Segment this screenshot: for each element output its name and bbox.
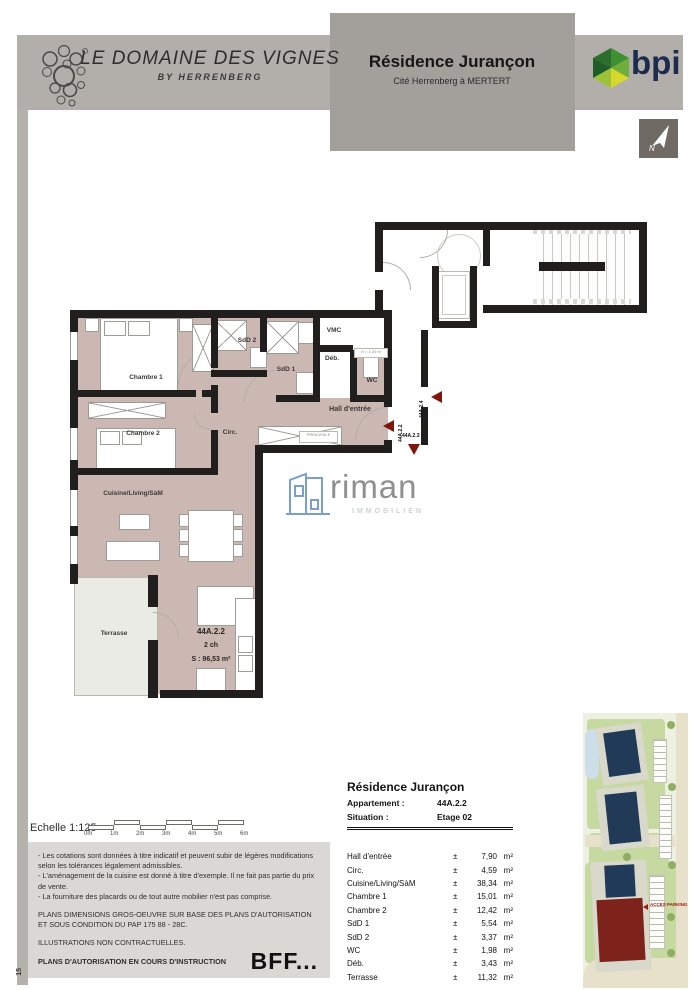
area-row-plusminus: ± bbox=[453, 973, 467, 982]
area-row-unit: m² bbox=[497, 919, 513, 928]
scale-tick-label: 4m bbox=[188, 831, 196, 837]
area-row: Chambre 2 ± 12,42 m² bbox=[347, 906, 513, 919]
situation-row: Situation : Etage 02 bbox=[347, 811, 513, 825]
area-row-plusminus: ± bbox=[453, 852, 467, 861]
project-subtitle: Cité Herrenberg à MERTERT bbox=[393, 76, 510, 86]
scale-segment bbox=[88, 825, 114, 830]
table-divider bbox=[347, 827, 513, 828]
notes-bullets: - Les cotations sont données à titre ind… bbox=[38, 851, 320, 902]
coffee-table bbox=[119, 514, 150, 530]
tree bbox=[623, 853, 631, 861]
chair bbox=[179, 544, 189, 557]
area-row-name: Hall d'entrée bbox=[347, 852, 453, 861]
wall bbox=[70, 310, 384, 318]
wall bbox=[470, 266, 477, 328]
area-row-value: 12,42 bbox=[467, 906, 497, 915]
grape-logo bbox=[36, 38, 98, 108]
window bbox=[70, 536, 78, 564]
area-row-value: 5,54 bbox=[467, 919, 497, 928]
stair-hatch-bottom bbox=[533, 299, 631, 304]
room-label-circ: Circ. bbox=[223, 429, 237, 436]
wall bbox=[78, 468, 218, 475]
toilet-wc bbox=[363, 357, 379, 378]
apartment-label: Appartement : bbox=[347, 797, 437, 811]
marker-label-44A-2-3: 44A.2.3 bbox=[402, 433, 420, 439]
area-row-unit: m² bbox=[497, 973, 513, 982]
access-parking-label: ACCÈS PARKING bbox=[650, 902, 687, 907]
scale-segment bbox=[166, 820, 192, 825]
riman-watermark: riman IMMOBILIEN bbox=[286, 464, 330, 523]
scale-tick-label: 6m bbox=[240, 831, 248, 837]
table-divider bbox=[347, 829, 513, 830]
area-row-unit: m² bbox=[497, 906, 513, 915]
wall bbox=[639, 222, 647, 313]
tree bbox=[667, 721, 675, 729]
area-row-name: WC bbox=[347, 946, 453, 955]
sofa bbox=[106, 541, 160, 561]
chair bbox=[179, 529, 189, 542]
situation-label: Situation : bbox=[347, 811, 437, 825]
parking-stalls bbox=[653, 739, 667, 783]
marker-triangle-44A-2-3 bbox=[408, 444, 420, 455]
wall bbox=[350, 395, 392, 402]
window bbox=[70, 332, 78, 360]
area-row-name: SdD 2 bbox=[347, 933, 453, 942]
situation-value: Etage 02 bbox=[437, 811, 472, 825]
wall bbox=[211, 385, 218, 413]
area-row-value: 38,34 bbox=[467, 879, 497, 888]
closet-tag: PRINCIPALE bbox=[299, 431, 338, 443]
room-label-hall: Hall d'entrée bbox=[329, 406, 371, 413]
shower-sdd1 bbox=[266, 321, 299, 354]
area-row-plusminus: ± bbox=[453, 866, 467, 875]
bpi-logo-text: bpi bbox=[631, 44, 680, 82]
wall bbox=[375, 222, 647, 230]
note-bullet: - La fourniture des placards ou de tout … bbox=[38, 892, 320, 902]
nightstand bbox=[179, 318, 193, 332]
area-row-name: SdD 1 bbox=[347, 919, 453, 928]
north-arrow-box: N bbox=[639, 119, 678, 158]
scale-segment bbox=[218, 820, 244, 825]
wall bbox=[255, 450, 263, 698]
area-row-unit: m² bbox=[497, 852, 513, 861]
wall bbox=[255, 445, 392, 453]
wall bbox=[483, 222, 490, 266]
area-row: Terrasse ± 11,32 m² bbox=[347, 973, 513, 986]
chair bbox=[233, 529, 243, 542]
wall bbox=[70, 390, 196, 397]
pillow bbox=[104, 321, 126, 336]
area-row-name: Cuisine/Living/SàM bbox=[347, 879, 453, 888]
wall bbox=[375, 290, 383, 318]
room-label-vmc: VMC bbox=[327, 327, 341, 334]
area-row: WC ± 1,98 m² bbox=[347, 946, 513, 959]
room-label-wc: WC bbox=[367, 377, 378, 384]
room-label-sdd2: SdD 2 bbox=[238, 337, 256, 344]
window bbox=[70, 428, 78, 460]
marker-triangle-44A-2-2 bbox=[383, 420, 394, 432]
marker-triangle-44A-2-4 bbox=[431, 391, 442, 403]
toilet-sdd1 bbox=[298, 322, 314, 344]
wall bbox=[313, 318, 320, 402]
wall bbox=[384, 310, 392, 407]
room-label-deb: Déb. bbox=[325, 355, 339, 362]
wall bbox=[276, 395, 320, 402]
area-row-unit: m² bbox=[497, 879, 513, 888]
scale-segment bbox=[140, 825, 166, 830]
area-rows: Hall d'entrée ± 7,90 m² Circ. ± 4,59 m² … bbox=[347, 852, 513, 986]
area-row-value: 11,32 bbox=[467, 973, 497, 982]
stair-landing-bar bbox=[539, 262, 605, 271]
shower-sdd2 bbox=[215, 320, 247, 351]
access-parking-arrow bbox=[643, 904, 648, 910]
tree bbox=[667, 913, 675, 921]
scale-segment bbox=[114, 820, 140, 825]
apartment-row: Appartement : 44A.2.2 bbox=[347, 797, 513, 811]
wall bbox=[421, 330, 428, 387]
room-label-chambre1: Chambre 1 bbox=[129, 374, 163, 381]
parking-stalls bbox=[649, 875, 665, 949]
area-row-plusminus: ± bbox=[453, 919, 467, 928]
tree bbox=[667, 949, 675, 957]
left-margin-strip bbox=[17, 35, 28, 985]
area-row-value: 3,43 bbox=[467, 959, 497, 968]
area-row-plusminus: ± bbox=[453, 946, 467, 955]
note-paragraph-1: PLANS DIMENSIONS GROS-OEUVRE SUR BASE DE… bbox=[38, 910, 320, 930]
parking-stalls bbox=[659, 795, 672, 859]
area-row-plusminus: ± bbox=[453, 879, 467, 888]
site-parcel bbox=[583, 713, 688, 988]
wall bbox=[148, 575, 158, 607]
brand-title: LE DOMAINE DES VIGNES bbox=[80, 48, 340, 70]
riman-subtitle: IMMOBILIEN bbox=[352, 508, 424, 515]
area-row: SdD 1 ± 5,54 m² bbox=[347, 919, 513, 932]
bpi-logo-icon bbox=[591, 46, 631, 90]
brand-subtitle: BY HERRENBERG bbox=[158, 72, 263, 82]
wardrobe-chambre2 bbox=[88, 402, 166, 419]
wall bbox=[320, 345, 353, 352]
road bbox=[676, 713, 688, 988]
plan-sheet: LE DOMAINE DES VIGNES BY HERRENBERG Rési… bbox=[0, 0, 700, 990]
dining-table bbox=[188, 510, 234, 562]
unit-surface: S : 96,53 m² bbox=[192, 656, 231, 663]
marker-label-44A-2-4: 44A.2.4 bbox=[419, 386, 425, 418]
note-bullet: - Les cotations sont données à titre ind… bbox=[38, 851, 320, 871]
scale-tick-label: 5m bbox=[214, 831, 222, 837]
area-row-value: 7,90 bbox=[467, 852, 497, 861]
north-arrow-icon: N bbox=[639, 119, 678, 158]
kitchen-appliance bbox=[238, 655, 253, 672]
tree bbox=[668, 783, 676, 791]
room-label-chambre2: Chambre 2 bbox=[126, 430, 160, 437]
area-row: Cuisine/Living/SàM ± 38,34 m² bbox=[347, 879, 513, 892]
site-plan: ACCÈS PARKING bbox=[583, 713, 693, 988]
wall bbox=[211, 370, 267, 377]
area-table-title: Résidence Jurançon bbox=[347, 780, 513, 794]
north-letter: N bbox=[649, 144, 655, 153]
page-side-number: 15 bbox=[16, 968, 23, 976]
area-row-name: Déb. bbox=[347, 959, 453, 968]
area-row-unit: m² bbox=[497, 946, 513, 955]
wall bbox=[375, 222, 383, 272]
scale-tick-label: 0m bbox=[84, 831, 92, 837]
area-row-plusminus: ± bbox=[453, 906, 467, 915]
area-row-name: Terrasse bbox=[347, 973, 453, 982]
scale-tick-label: 3m bbox=[162, 831, 170, 837]
wall bbox=[432, 321, 477, 328]
bff-stamp: BFF... bbox=[251, 948, 318, 975]
area-row-plusminus: ± bbox=[453, 933, 467, 942]
area-row-plusminus: ± bbox=[453, 892, 467, 901]
window bbox=[70, 490, 78, 526]
scale-ticks: 0m1m2m3m4m5m6m bbox=[84, 831, 254, 839]
elevator-car bbox=[438, 271, 470, 319]
area-row: Chambre 1 ± 15,01 m² bbox=[347, 892, 513, 905]
kitchen-appliance bbox=[238, 636, 253, 653]
area-row-value: 3,37 bbox=[467, 933, 497, 942]
wall bbox=[211, 318, 218, 368]
area-row: SdD 2 ± 3,37 m² bbox=[347, 933, 513, 946]
nightstand bbox=[85, 318, 99, 332]
elevator-car-inner bbox=[442, 275, 466, 315]
pillow bbox=[100, 431, 120, 445]
area-row-unit: m² bbox=[497, 866, 513, 875]
wall bbox=[432, 266, 439, 328]
area-row: Circ. ± 4,59 m² bbox=[347, 866, 513, 879]
building-roof-navy bbox=[603, 729, 641, 777]
wall bbox=[160, 690, 263, 698]
scale-tick-label: 2m bbox=[136, 831, 144, 837]
area-row-unit: m² bbox=[497, 933, 513, 942]
wall bbox=[148, 640, 158, 698]
building-roof-navy bbox=[604, 864, 636, 898]
scale-segment bbox=[192, 825, 218, 830]
chair bbox=[179, 514, 189, 527]
building-roof-red-highlight bbox=[596, 898, 645, 962]
building-roof-navy bbox=[604, 791, 641, 844]
wc-height-tag: H = 1,20 m bbox=[354, 348, 388, 358]
scale-tick-label: 1m bbox=[110, 831, 118, 837]
riman-buildings-icon bbox=[286, 464, 330, 518]
room-label-sdd1: SdD 1 bbox=[277, 366, 295, 373]
area-row-name: Circ. bbox=[347, 866, 453, 875]
area-row-name: Chambre 1 bbox=[347, 892, 453, 901]
area-row-value: 15,01 bbox=[467, 892, 497, 901]
room-label-cuisine: Cuisine/Living/SàM bbox=[103, 490, 163, 497]
wall bbox=[483, 305, 647, 313]
unit-rooms-count: 2 ch bbox=[204, 642, 218, 649]
area-row: Hall d'entrée ± 7,90 m² bbox=[347, 852, 513, 865]
note-bullet: - L'aménagement de la cuisine est donné … bbox=[38, 871, 320, 891]
tree bbox=[668, 861, 676, 869]
door-arc-corridor bbox=[383, 262, 411, 290]
area-row-plusminus: ± bbox=[453, 959, 467, 968]
area-row-name: Chambre 2 bbox=[347, 906, 453, 915]
apartment-value: 44A.2.2 bbox=[437, 797, 467, 811]
kitchen-range bbox=[196, 668, 226, 691]
pillow bbox=[128, 321, 150, 336]
chair bbox=[233, 544, 243, 557]
riman-name: riman bbox=[330, 468, 418, 506]
area-row-unit: m² bbox=[497, 959, 513, 968]
unit-code: 44A.2.2 bbox=[197, 627, 225, 636]
area-row: Déb. ± 3,43 m² bbox=[347, 959, 513, 972]
area-row-value: 4,59 bbox=[467, 866, 497, 875]
area-row-value: 1,98 bbox=[467, 946, 497, 955]
project-title: Résidence Jurançon bbox=[369, 52, 535, 72]
chair bbox=[233, 514, 243, 527]
area-row-unit: m² bbox=[497, 892, 513, 901]
sink-sdd1 bbox=[296, 372, 314, 394]
wall bbox=[260, 318, 267, 352]
room-label-terrasse: Terrasse bbox=[101, 630, 128, 637]
area-table: Résidence Jurançon Appartement : 44A.2.2… bbox=[347, 780, 513, 986]
